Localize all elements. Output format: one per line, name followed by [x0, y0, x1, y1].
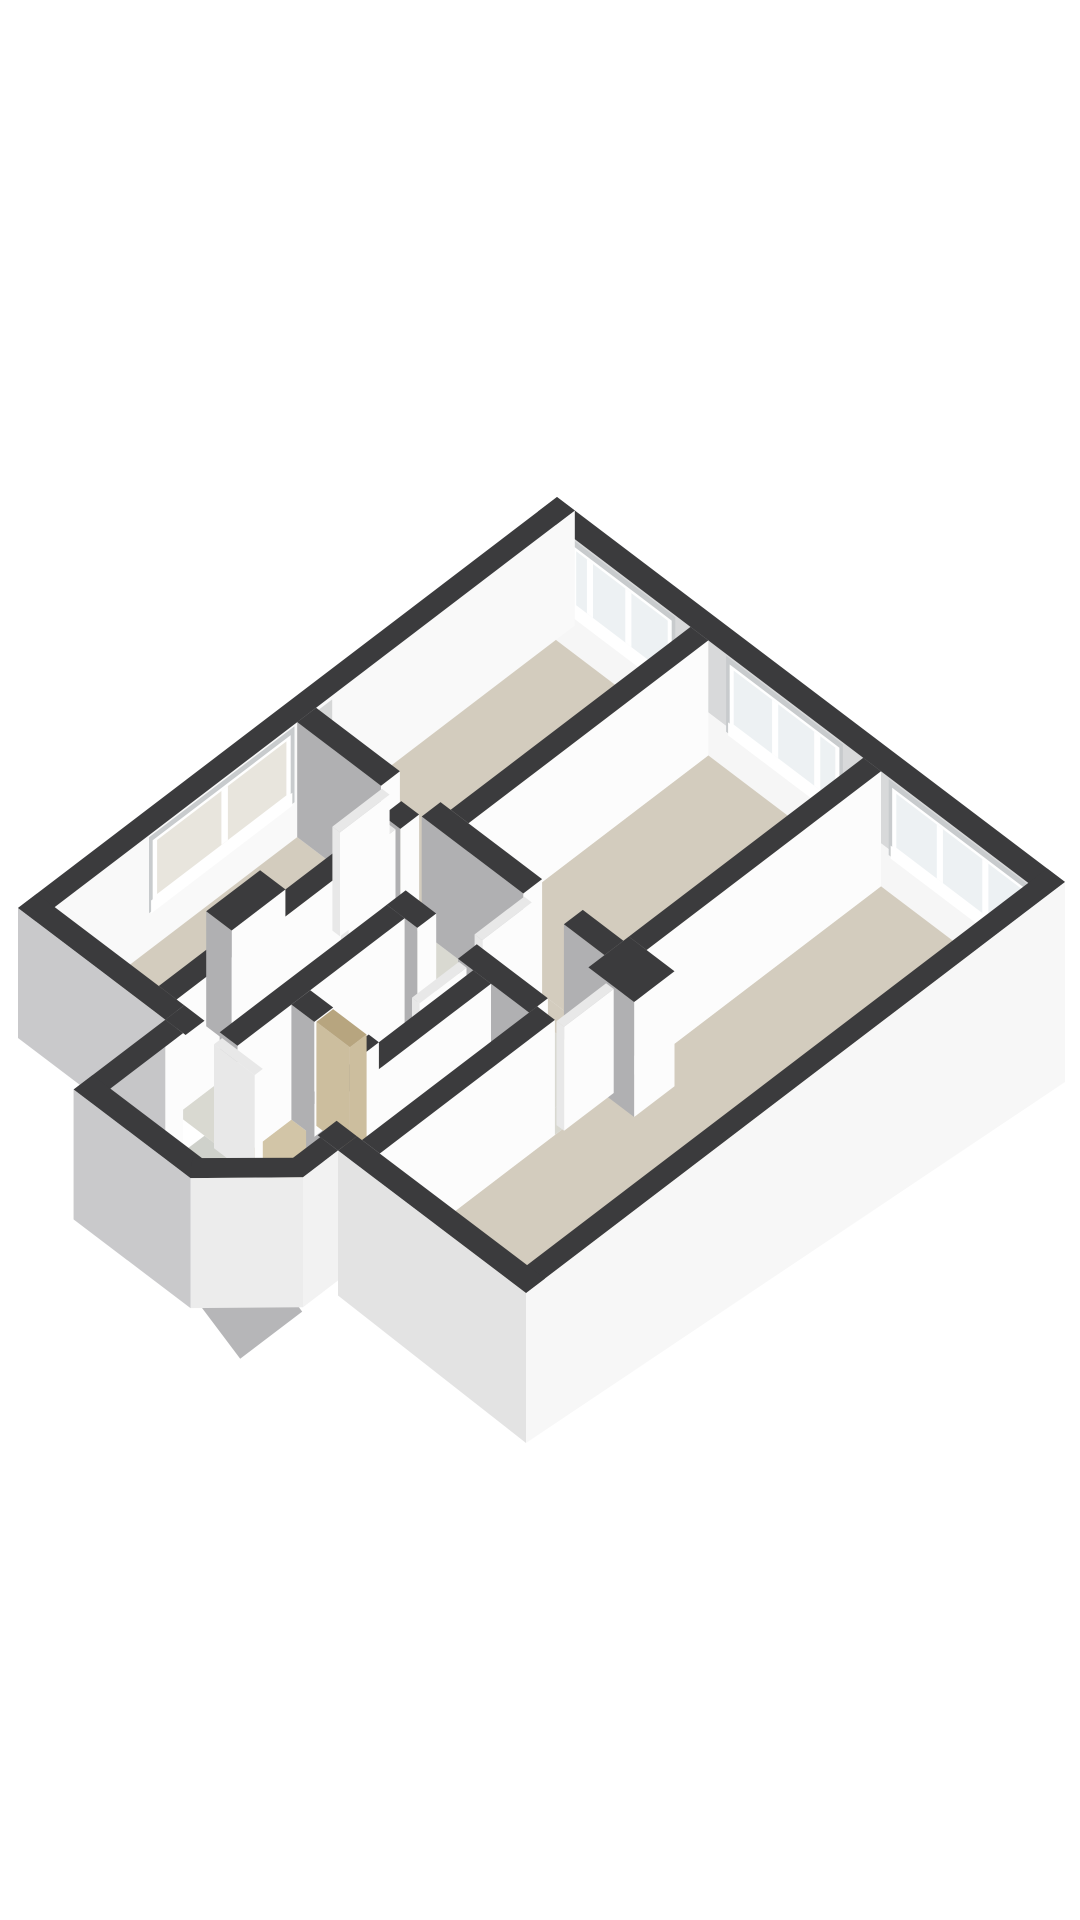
- stairwell-wall-diagonal-top: [191, 1158, 305, 1178]
- door-bedroom-top-face-sw: [332, 827, 340, 937]
- door-living-room-face-sw: [557, 1021, 565, 1131]
- floor-plan-3d-render: [0, 0, 1080, 1920]
- floor-plan-page: [0, 0, 1080, 1920]
- window-living-room-mullion-0: [937, 825, 943, 884]
- window-left-room-mullion-0: [221, 786, 228, 845]
- window-bedroom-middle-mullion-0: [772, 700, 778, 759]
- window-bedroom-top-mullion-1: [625, 589, 631, 648]
- wall-closet-west-face-sw: [291, 1005, 314, 1137]
- window-living-room-mullion-1: [982, 859, 988, 918]
- stairwell-wall-east-outer: [303, 1151, 338, 1308]
- window-bedroom-top-mullion-0: [587, 559, 593, 618]
- stairwell-wall-diagonal-outer: [191, 1177, 304, 1308]
- chimney-block-face-sw: [206, 911, 231, 1045]
- window-bedroom-middle-mullion-1: [814, 732, 820, 791]
